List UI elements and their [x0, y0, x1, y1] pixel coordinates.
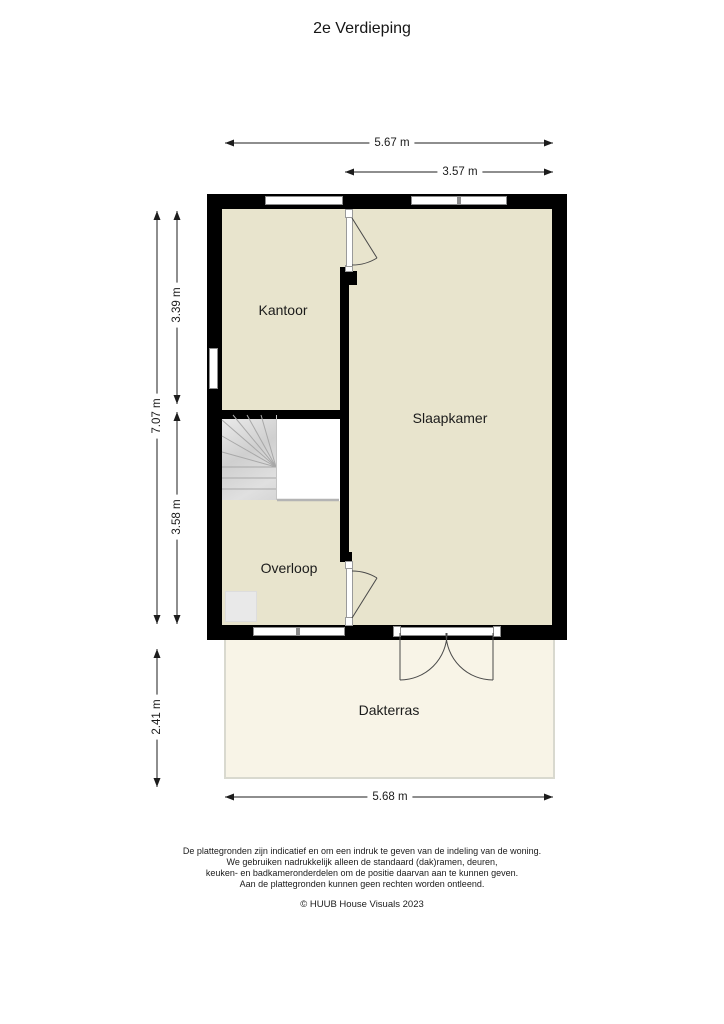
wall-right: [552, 194, 567, 640]
window-bottom: [253, 627, 345, 636]
wall-left: [207, 194, 222, 640]
door-leaf-kantoor: [346, 217, 353, 267]
dim-total-depth: 7.07 m: [151, 393, 163, 438]
wall-top: [207, 194, 567, 209]
dim-overloop-depth: 3.58 m: [171, 494, 183, 539]
disclaimer-text: De plattegronden zijn indicatief en om e…: [0, 846, 724, 890]
room-label-slaapkamer: Slaapkamer: [413, 410, 488, 426]
disclaimer-line: De plattegronden zijn indicatief en om e…: [0, 846, 724, 857]
dim-total-width: 5.67 m: [369, 137, 414, 149]
window-mullion: [296, 627, 300, 636]
room-label-dakterras: Dakterras: [359, 702, 420, 718]
dim-kantoor-depth: 3.39 m: [171, 282, 183, 327]
page-title: 2e Verdieping: [0, 20, 724, 38]
disclaimer-line: Aan de plattegronden kunnen geen rechten…: [0, 879, 724, 890]
door-jamb-right: [493, 626, 501, 637]
door-leaf-overloop: [346, 568, 353, 618]
french-door-threshold: [397, 627, 494, 636]
stairwell-void: [277, 415, 340, 501]
dim-terrace-width: 5.68 m: [367, 791, 412, 803]
window-top-left: [265, 196, 343, 205]
wall-interior-vertical: [340, 267, 349, 553]
room-label-overloop: Overloop: [261, 560, 318, 576]
window-left: [209, 348, 218, 389]
disclaimer-line: We gebruiken nadrukkelijk alleen de stan…: [0, 857, 724, 868]
dim-terrace-depth: 2.41 m: [151, 694, 163, 739]
door-jamb-left: [393, 626, 401, 637]
copyright-text: © HUUB House Visuals 2023: [0, 899, 724, 910]
disclaimer-line: keuken- en badkameronderdelen om de posi…: [0, 868, 724, 879]
door-stop-top: [349, 271, 357, 285]
wall-interior-horizontal: [222, 410, 340, 419]
window-top-right: [411, 196, 507, 205]
room-label-kantoor: Kantoor: [258, 302, 307, 318]
dim-bedroom-width: 3.57 m: [437, 166, 482, 178]
staircase: [222, 415, 277, 500]
knee-wall-block: [225, 591, 257, 622]
floorplan-page: 2e Verdieping: [0, 0, 724, 1024]
door-frame: [345, 617, 353, 626]
window-mullion: [457, 196, 461, 205]
